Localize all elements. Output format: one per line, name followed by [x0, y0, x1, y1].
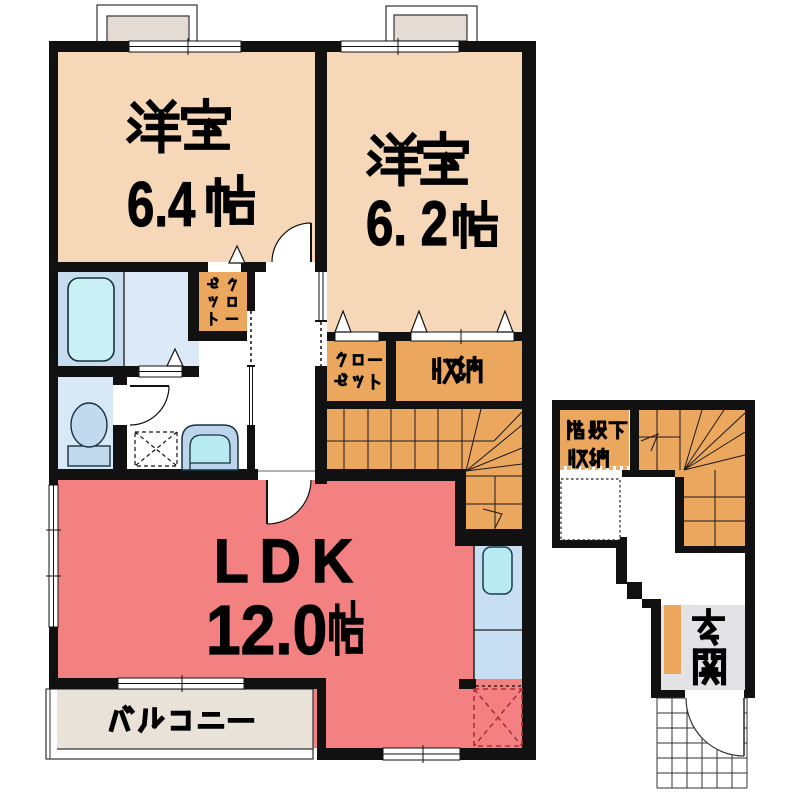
svg-text:12.0: 12.0	[206, 592, 327, 670]
svg-text:6.4: 6.4	[127, 169, 196, 239]
svg-text:6. 2: 6. 2	[366, 188, 448, 258]
svg-text:LDK: LDK	[214, 528, 364, 595]
